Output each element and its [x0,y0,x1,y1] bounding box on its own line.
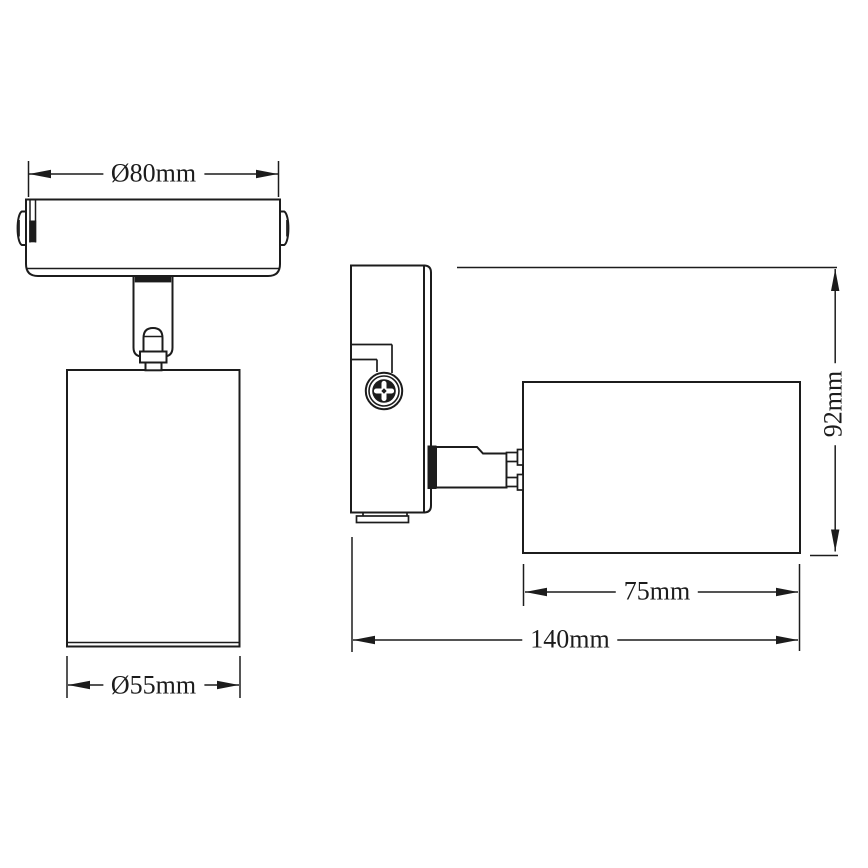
technical-drawing-canvas [0,0,868,868]
technical-drawing-page: Ø80mm Ø55mm 92mm 75mm 140mm [0,0,868,868]
side-view [351,266,800,554]
dim-label-plate-diameter: Ø80mm [103,159,204,186]
adjustment-knob-flange [140,352,167,363]
lamp-body-side [523,382,800,553]
arrowhead-left-icon [525,588,547,596]
mounting-screw-slot-fill [29,221,36,243]
arm-connector-pin-bottom [518,475,524,491]
arrowhead-right-icon [776,636,798,644]
arm-connector-pin-top [507,453,518,462]
arrowhead-right-icon [256,170,278,178]
wall-foot-base [357,516,409,523]
arm-connector-pin-top [518,450,524,466]
mounting-plate-front [26,200,280,277]
arrowhead-left-icon [353,636,375,644]
swivel-arm [436,447,507,488]
dim-label-body-length: 75mm [616,577,698,604]
front-view [18,200,289,647]
dim-label-total-depth: 140mm [522,625,617,652]
arrowhead-right-icon [776,588,798,596]
arm-connector-pin-bottom [507,478,518,487]
swivel-pivot-bar [135,277,171,283]
arrowhead-right-icon [217,681,239,689]
arrowhead-down-icon [831,530,839,552]
arrowhead-left-icon [68,681,90,689]
arrowhead-up-icon [831,269,839,291]
adjustment-knob-dome [144,328,163,352]
arrowhead-left-icon [29,170,51,178]
lamp-body-front [67,370,240,647]
dim-label-body-diameter: Ø55mm [103,671,204,698]
dim-label-height: 92mm [819,363,846,445]
adjustment-knob-tab [146,363,162,371]
